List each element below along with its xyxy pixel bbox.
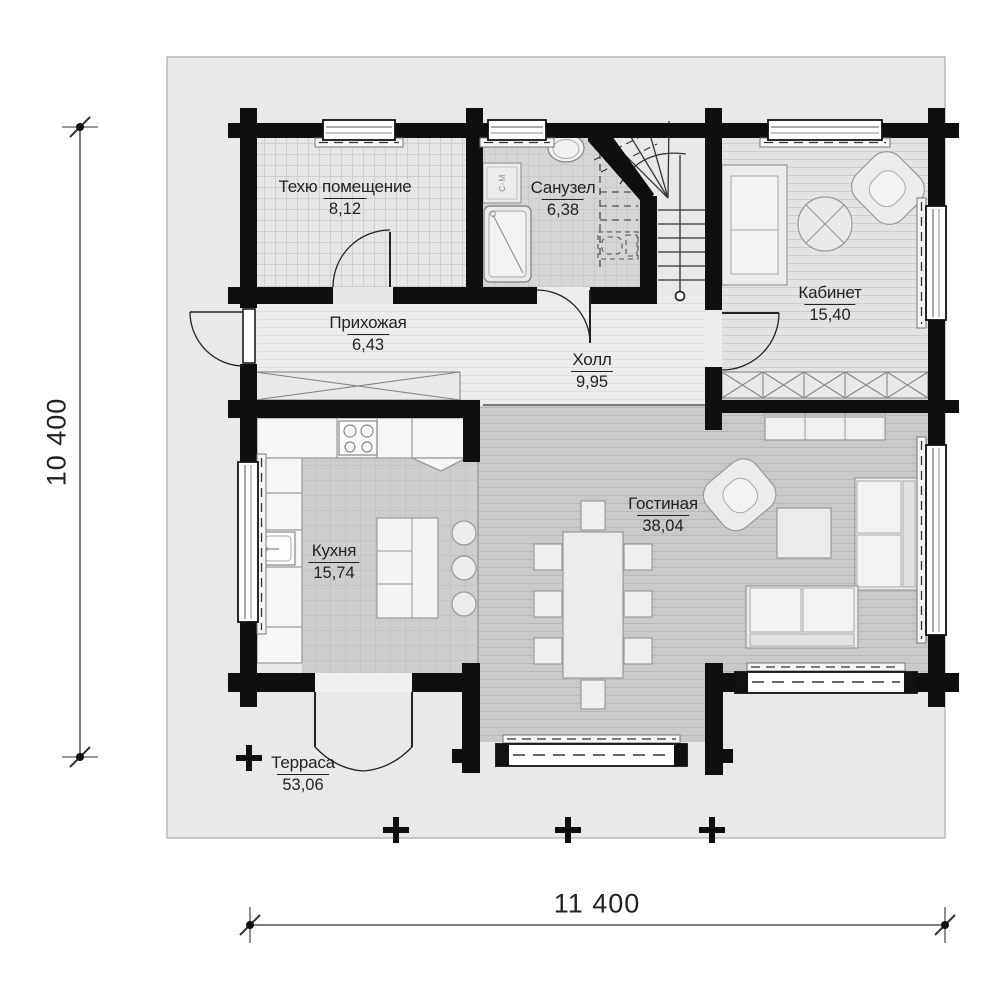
window-study-right — [917, 198, 946, 328]
room-label-study: Кабинет 15,40 — [798, 283, 861, 325]
room-label-terrace: Терраса 53,06 — [271, 753, 335, 795]
room-name: Санузел — [531, 178, 596, 198]
stove — [339, 421, 377, 455]
sofa-right — [855, 478, 917, 590]
room-name: Кухня — [312, 541, 357, 561]
wall-bottom-left — [228, 673, 315, 692]
bay-post-left — [462, 663, 480, 773]
wall-hall-study — [705, 108, 722, 310]
sofa-bottom — [746, 586, 858, 648]
entry-wardrobe — [255, 372, 460, 400]
wall-kitchen-top — [228, 400, 480, 418]
dimension-label-horizontal: 11 400 — [554, 889, 641, 920]
study-sofa — [722, 165, 787, 285]
washing-machine-label: С-М — [497, 174, 507, 192]
wall-study-bottom — [705, 400, 959, 413]
study-wardrobe — [722, 372, 928, 398]
wall-tech-bath — [466, 108, 483, 304]
floor-plan-drawing — [0, 0, 1000, 1000]
kitchen-island — [377, 518, 438, 618]
room-label-tech: Техю помещение 8,12 — [278, 177, 411, 219]
sideboard — [765, 413, 885, 440]
floor-plan-page: Техю помещение 8,12 Санузел 6,38 Кабинет… — [0, 0, 1000, 1000]
room-label-living: Гостиная 38,04 — [628, 494, 698, 536]
room-label-kitchen: Кухня 15,74 — [308, 541, 359, 583]
window-living-bottom — [735, 663, 917, 693]
room-area: 15,40 — [804, 304, 855, 325]
room-name: Гостиная — [628, 494, 698, 514]
room-name: Прихожая — [329, 313, 406, 333]
shower — [484, 206, 531, 282]
room-name: Холл — [572, 350, 611, 370]
bar-stools — [452, 521, 476, 616]
window-study-top — [760, 120, 890, 147]
room-area: 15,74 — [308, 562, 359, 583]
window-bay — [496, 735, 687, 766]
window-kitchen-left — [238, 454, 266, 634]
room-name: Техю помещение — [278, 177, 411, 197]
bay-post-right — [705, 663, 723, 775]
dimension-label-vertical: 10 400 — [42, 398, 73, 487]
room-label-bathroom: Санузел 6,38 — [531, 178, 596, 220]
room-label-hall: Холл 9,95 — [571, 350, 613, 392]
window-bathroom — [480, 120, 554, 147]
room-area: 9,95 — [571, 371, 613, 392]
room-area: 38,04 — [637, 515, 688, 536]
wall-entry-top — [228, 287, 333, 304]
room-name: Терраса — [271, 753, 335, 773]
study-round-table — [798, 197, 852, 251]
room-area: 6,43 — [347, 334, 389, 355]
room-name: Кабинет — [798, 283, 861, 303]
coffee-table — [777, 508, 831, 558]
room-area: 8,12 — [324, 198, 366, 219]
window-tech — [315, 120, 403, 147]
room-area: 53,06 — [277, 774, 328, 795]
wall-kitchen-living-stub — [463, 400, 480, 462]
window-living-right — [917, 437, 946, 643]
room-label-entry: Прихожая 6,43 — [329, 313, 406, 355]
room-area: 6,38 — [542, 199, 584, 220]
wall-stair-side — [640, 196, 657, 297]
wall-bottom-mid — [412, 673, 462, 692]
